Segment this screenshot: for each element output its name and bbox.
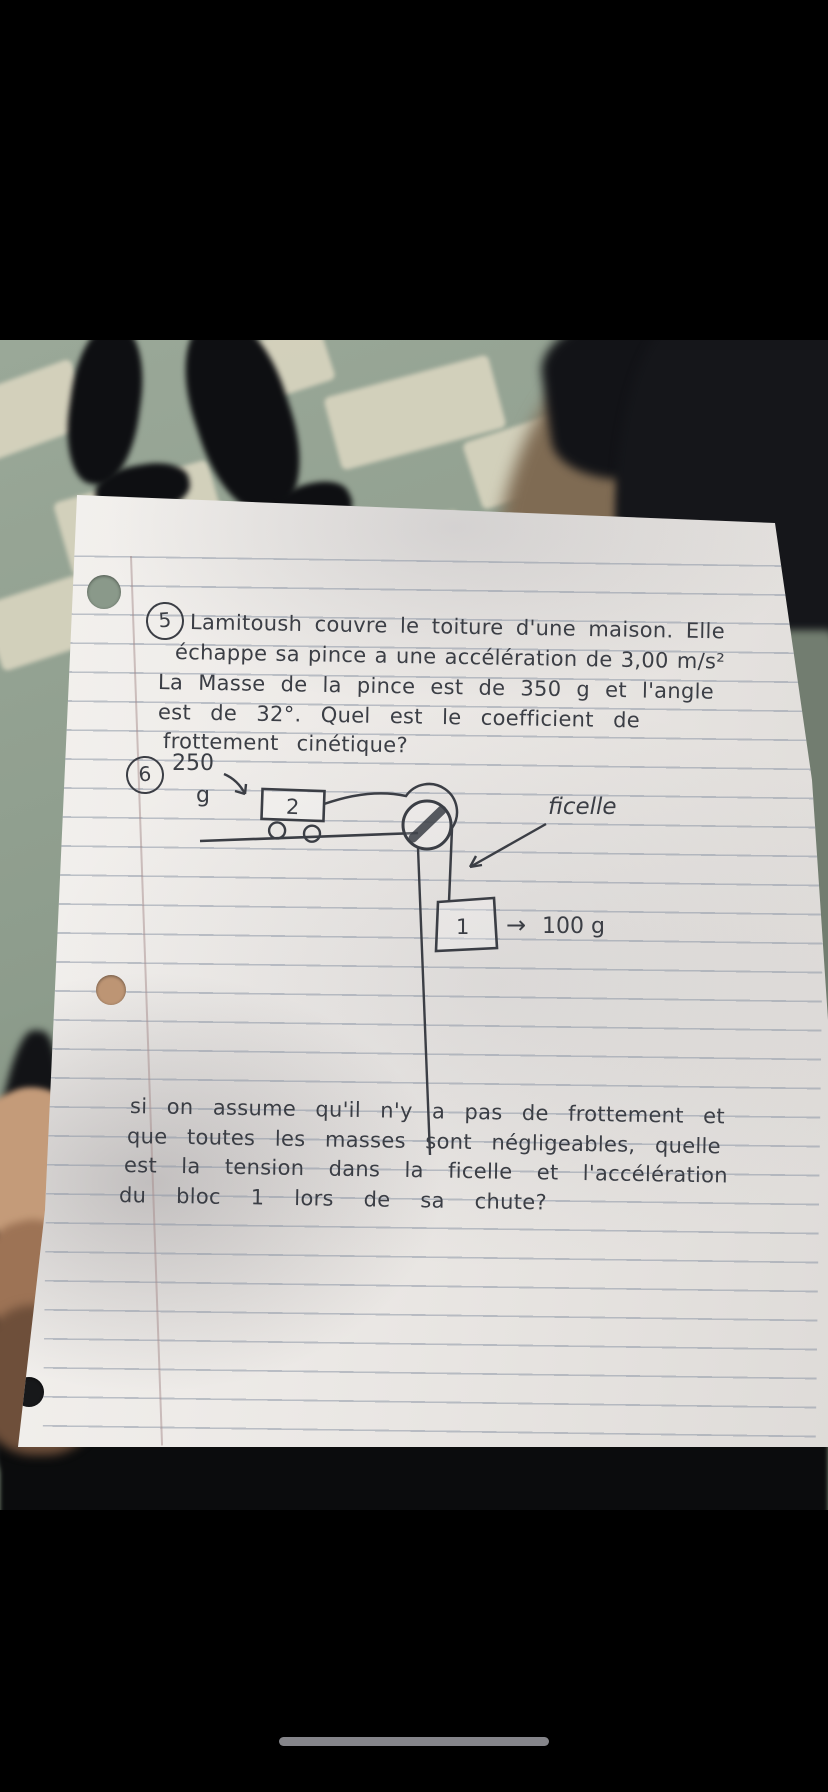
cart-mass-unit: g	[196, 783, 210, 808]
string-label: ficelle	[548, 794, 617, 820]
cart-wheel	[269, 822, 286, 839]
block-label: 1	[456, 915, 469, 939]
cart: 2	[261, 789, 325, 842]
punch-hole-middle	[96, 975, 126, 1005]
cart-mass-value: 250	[172, 751, 214, 776]
home-indicator-bar[interactable]	[279, 1737, 549, 1746]
block-mass-label: 100 g	[542, 914, 605, 939]
cart-label: 2	[286, 795, 300, 819]
ficelle-arrow-icon	[470, 824, 546, 867]
bottom-letterbox	[0, 1510, 828, 1792]
arrow-down-right-icon	[224, 774, 245, 794]
punch-hole-top	[87, 575, 121, 609]
photo-of-notebook: 5 Lamitoush couvre le toiture d'une mais…	[0, 340, 828, 1510]
right-arrow-icon: →	[506, 911, 526, 939]
cart-wheel	[304, 825, 321, 842]
phone-screenshot: 5 Lamitoush couvre le toiture d'une mais…	[0, 0, 828, 1792]
top-letterbox	[0, 0, 828, 340]
